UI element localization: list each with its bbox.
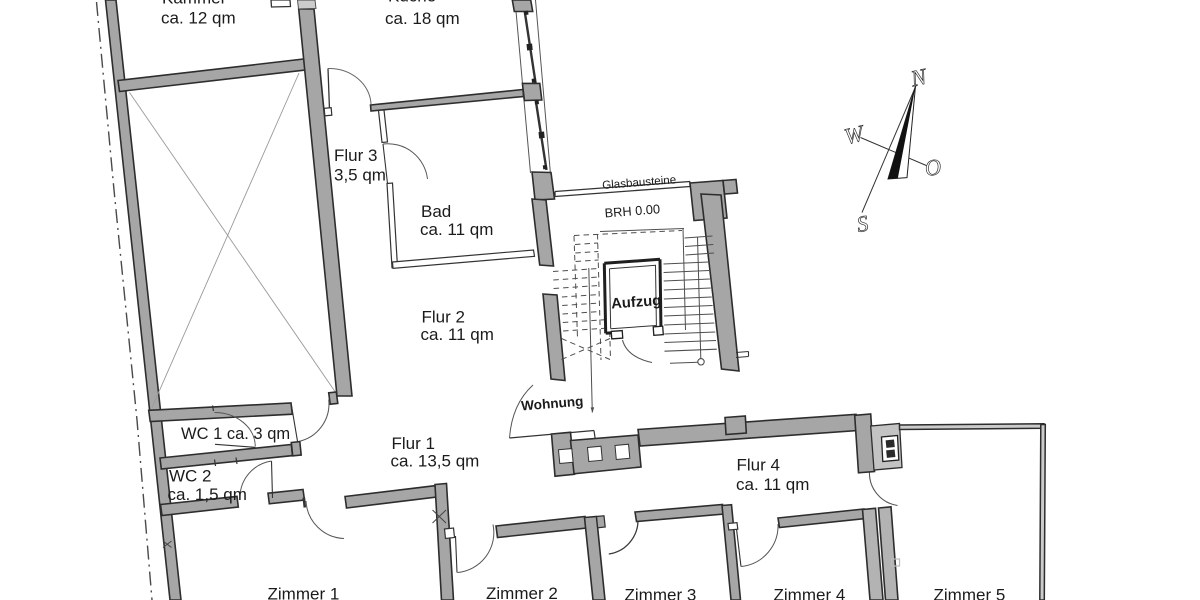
svg-text:ca. 11 qm: ca. 11 qm xyxy=(736,475,809,494)
svg-text:Zimmer 1: Zimmer 1 xyxy=(268,585,340,600)
svg-text:ca. 12 qm: ca. 12 qm xyxy=(161,9,236,28)
svg-text:Kammer: Kammer xyxy=(162,0,227,8)
svg-text:Flur 4: Flur 4 xyxy=(737,456,780,475)
svg-text:ca. 11 qm: ca. 11 qm xyxy=(421,325,494,344)
svg-text:Flur 1: Flur 1 xyxy=(392,434,435,453)
svg-text:ca. 13,5 qm: ca. 13,5 qm xyxy=(391,452,480,471)
svg-text:ca. 11 qm: ca. 11 qm xyxy=(420,220,493,239)
svg-text:ca. 18 qm: ca. 18 qm xyxy=(385,9,460,28)
svg-text:WC 1 ca. 3 qm: WC 1 ca. 3 qm xyxy=(181,425,290,443)
svg-text:Bad: Bad xyxy=(421,202,451,221)
svg-text:Zimmer 4: Zimmer 4 xyxy=(774,586,846,600)
svg-text:WC 2: WC 2 xyxy=(169,467,212,486)
svg-text:3,5 qm: 3,5 qm xyxy=(334,166,386,185)
svg-text:Zimmer 2: Zimmer 2 xyxy=(486,584,558,600)
svg-text:Küche: Küche xyxy=(388,0,436,6)
svg-text:Zimmer 3: Zimmer 3 xyxy=(625,586,697,600)
svg-text:Flur 2: Flur 2 xyxy=(422,308,465,327)
svg-text:ca. 1,5 qm: ca. 1,5 qm xyxy=(168,485,247,504)
svg-text:Zimmer 5: Zimmer 5 xyxy=(934,586,1006,600)
svg-text:Flur 3: Flur 3 xyxy=(334,146,377,165)
